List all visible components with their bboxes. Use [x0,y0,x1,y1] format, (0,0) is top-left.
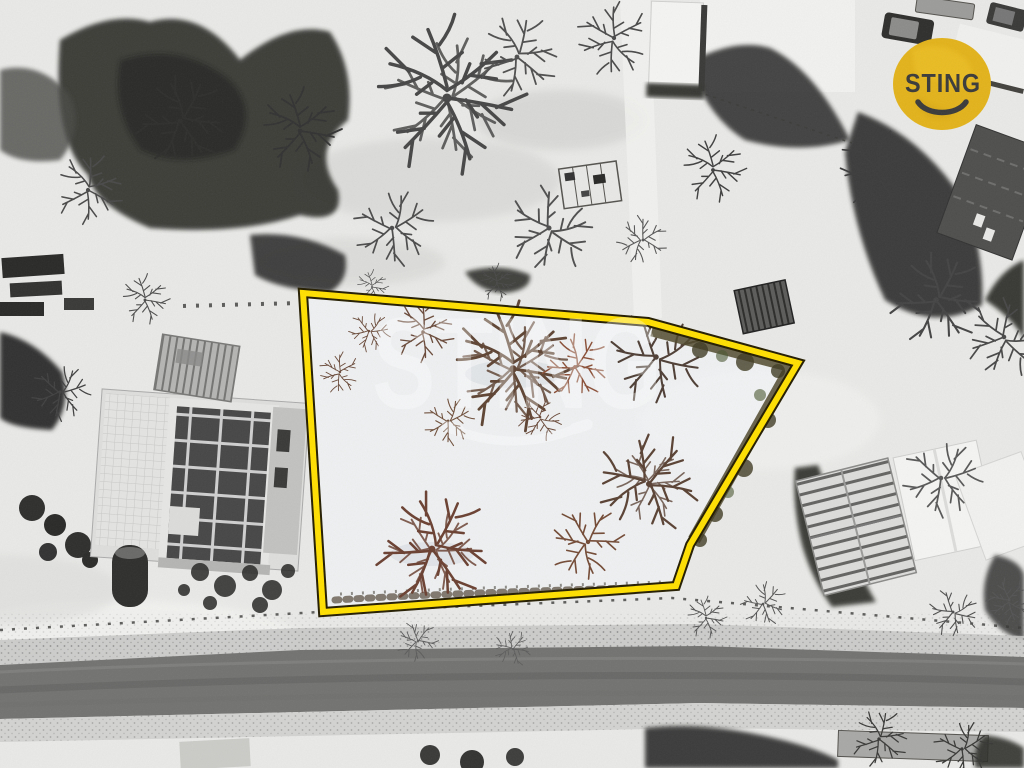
aerial-photo: STING STING [0,0,1024,768]
aerial-scene: STING STING [0,0,1024,768]
grain-overlay [0,0,1024,768]
